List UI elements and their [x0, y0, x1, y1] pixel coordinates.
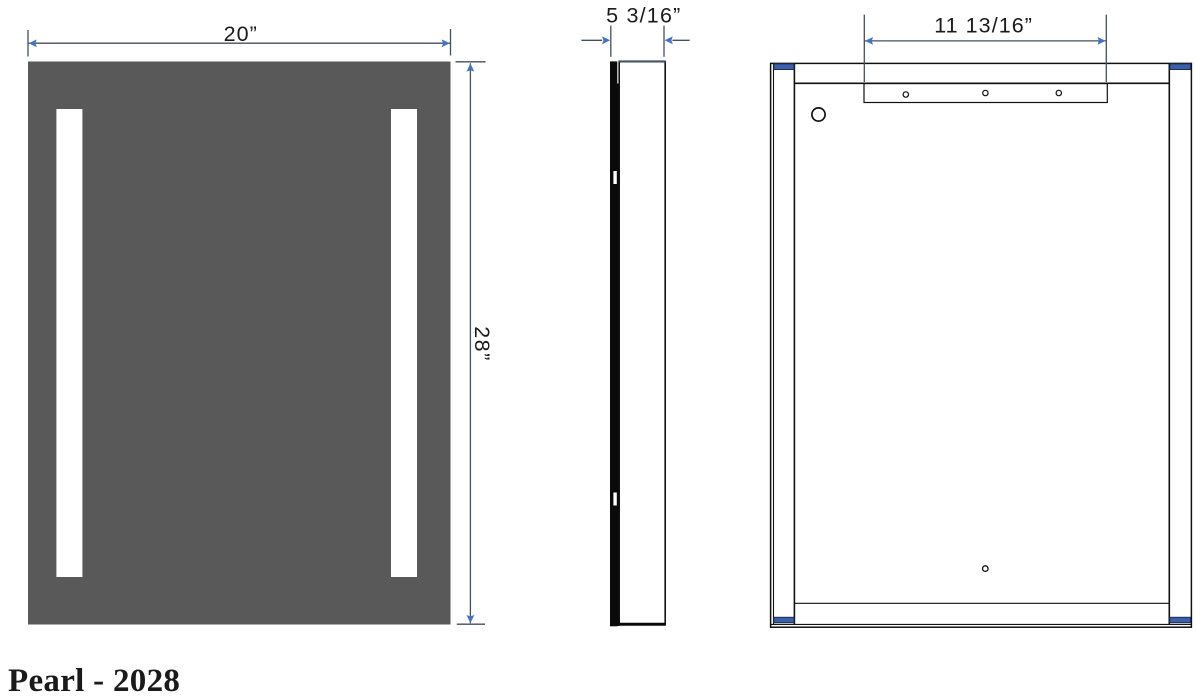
- svg-text:20”: 20”: [224, 22, 258, 46]
- svg-text:Pearl - 2028: Pearl - 2028: [8, 663, 180, 699]
- svg-text:28”: 28”: [470, 326, 494, 362]
- svg-text:11 13/16”: 11 13/16”: [934, 14, 1033, 38]
- svg-text:5 3/16”: 5 3/16”: [606, 4, 681, 28]
